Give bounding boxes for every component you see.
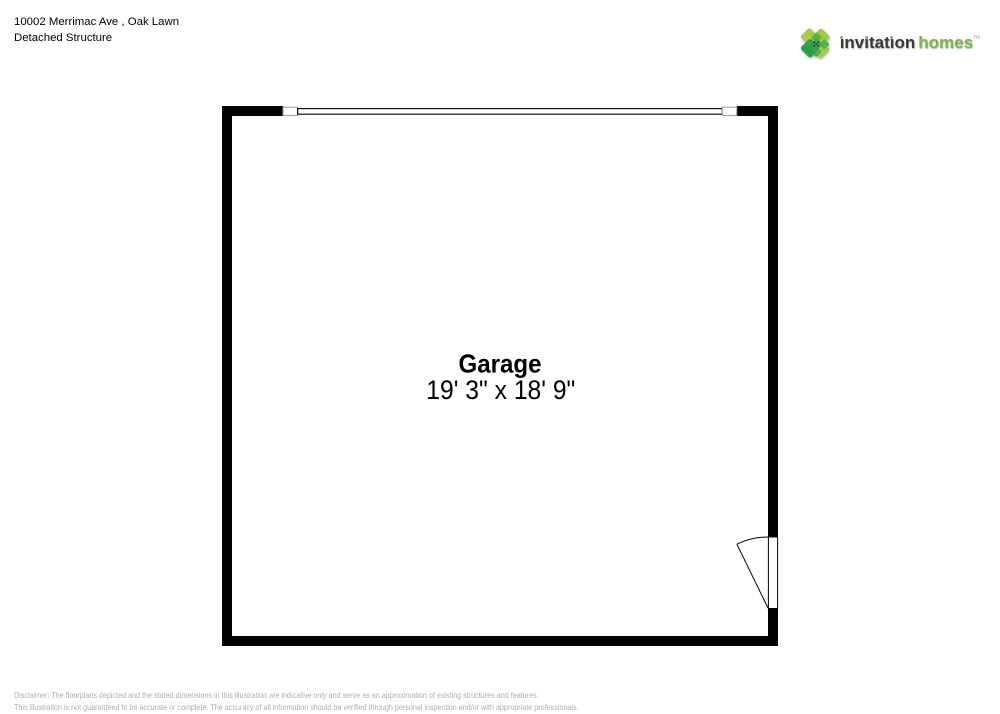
svg-text:19' 3" x 18' 9": 19' 3" x 18' 9" xyxy=(426,375,575,405)
svg-text:Garage: Garage xyxy=(459,349,542,379)
